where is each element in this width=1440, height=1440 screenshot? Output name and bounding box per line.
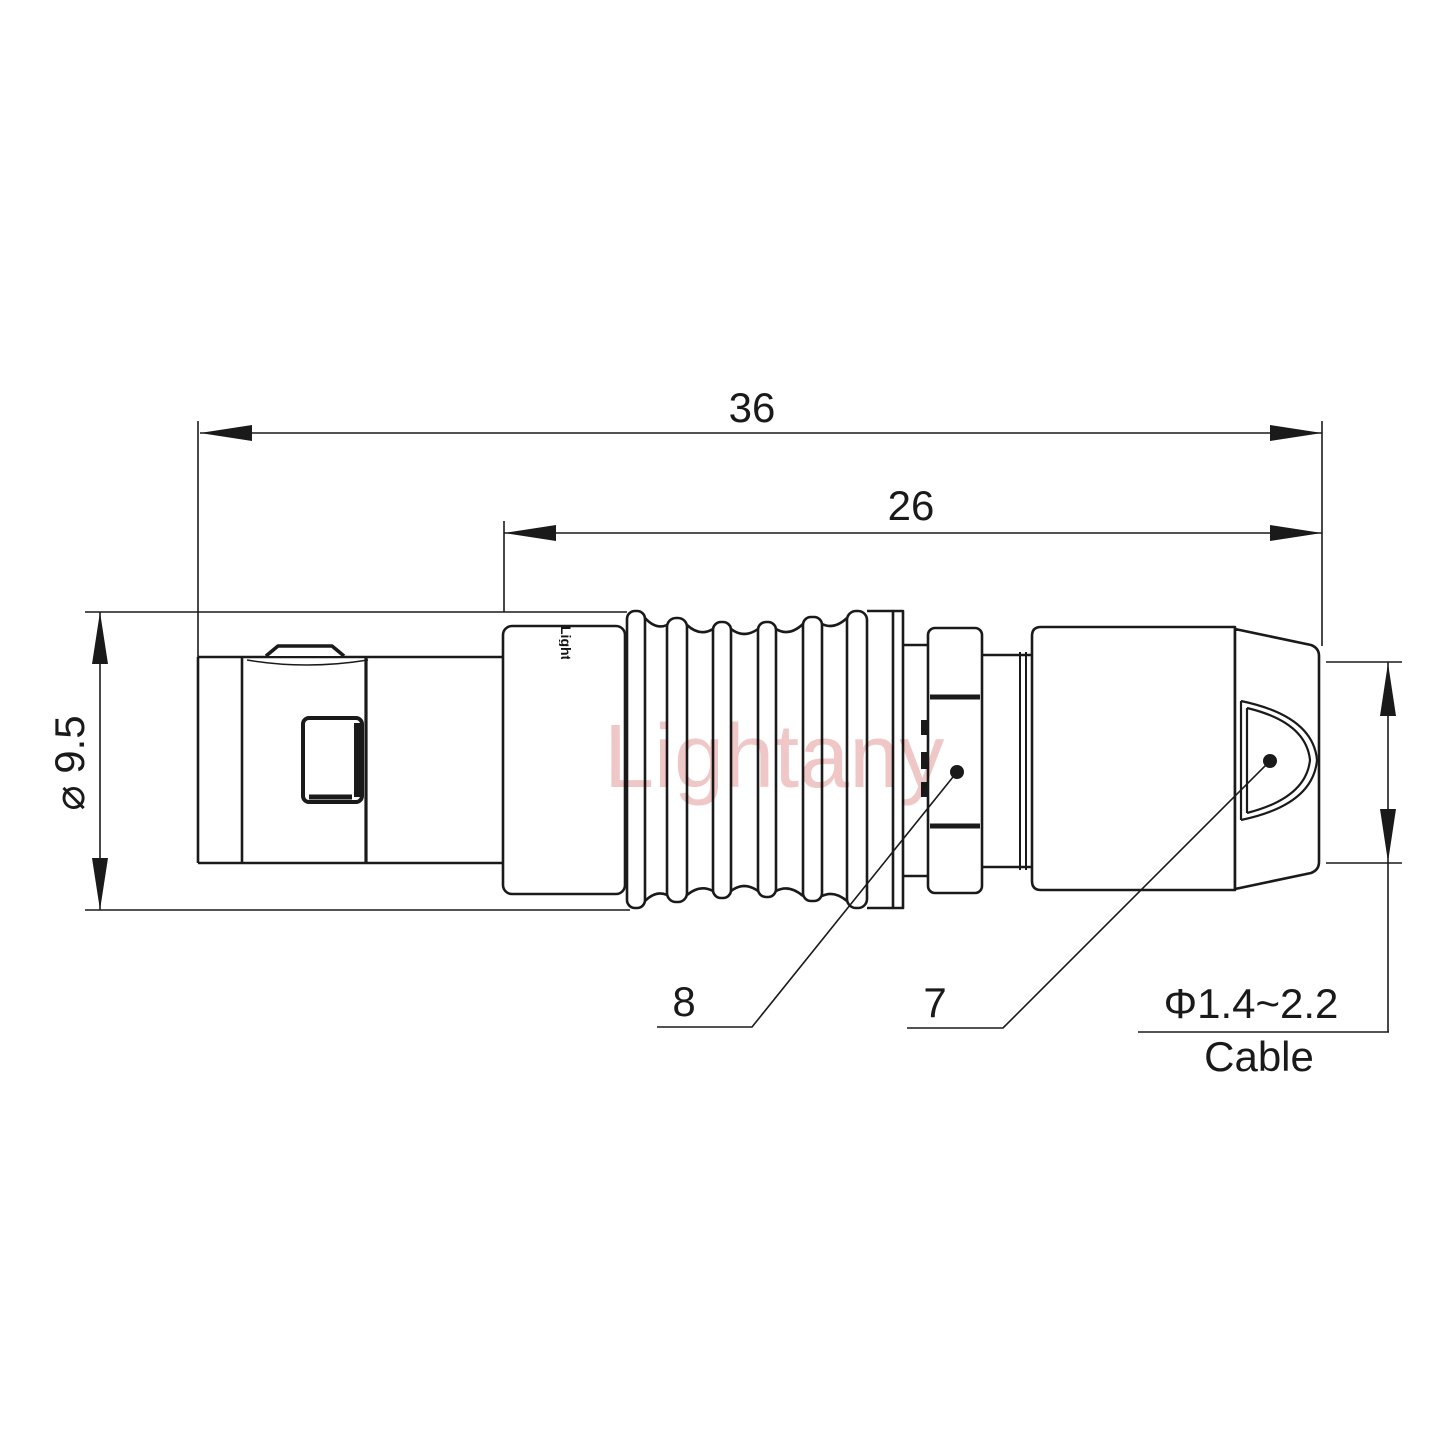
dimension-rear-length-label: 26: [888, 485, 935, 527]
latch-bump: [266, 646, 344, 656]
connector-logo-text: Lightany: [559, 626, 601, 659]
cable-diameter-range-label: Φ1.4~2.2: [1164, 983, 1339, 1025]
front-shell: [198, 646, 503, 863]
dimension-overall-length-label: 36: [729, 387, 776, 429]
cable-caption-label: Cable: [1204, 1036, 1314, 1078]
contact-window: [303, 718, 362, 802]
dim-26: [504, 521, 1322, 612]
dimension-shell-diameter-label: ⌀ 9.5: [49, 715, 91, 810]
technical-drawing-page: 36 26 ⌀ 9.5 8 7 Φ1.4~2.2 Cable Lightany …: [0, 0, 1440, 1440]
watermark-text: Lightany: [604, 712, 944, 802]
dim-36: [198, 421, 1322, 657]
callout-collet-nut-label: 8: [672, 981, 695, 1023]
callout-rear-nut-label: 7: [923, 982, 946, 1024]
barrel: [982, 652, 1032, 870]
